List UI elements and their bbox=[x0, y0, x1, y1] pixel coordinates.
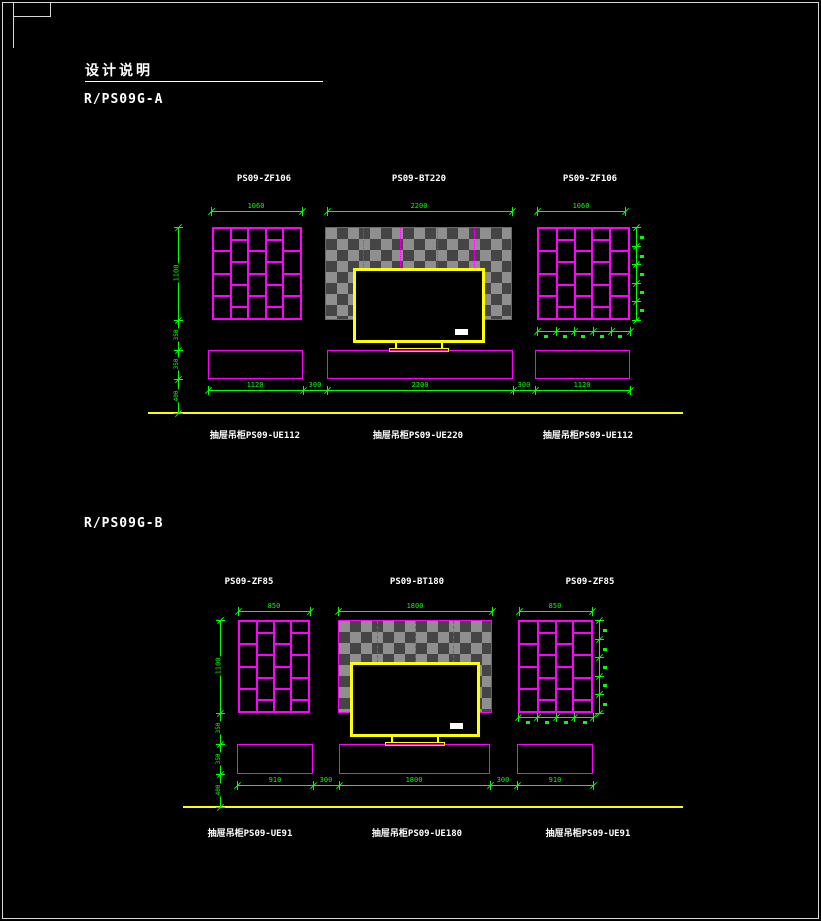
viewport-corner-tab bbox=[13, 3, 51, 17]
lattice-line bbox=[274, 643, 291, 645]
lattice-line bbox=[214, 273, 231, 275]
lattice-line bbox=[592, 284, 610, 286]
lattice-line bbox=[248, 273, 265, 275]
cabinet-right-b bbox=[517, 744, 593, 774]
lattice-line bbox=[556, 688, 574, 690]
lattice-line bbox=[573, 654, 591, 656]
viewport-corner-line bbox=[13, 3, 14, 48]
panel-label-left-a: PS09-ZF106 bbox=[237, 174, 291, 184]
lattice-line bbox=[231, 306, 248, 308]
drawing-b-name: R/PS09G-B bbox=[84, 516, 163, 531]
lattice-line bbox=[539, 250, 557, 252]
cabinet-right-a bbox=[535, 350, 630, 379]
lattice-line bbox=[257, 632, 274, 634]
lattice-panel-right-a bbox=[537, 227, 630, 320]
cabinet-label-left-a: 抽屉吊柜PS09-UE112 bbox=[210, 428, 300, 441]
lattice-line bbox=[520, 666, 538, 668]
tv-logo-b bbox=[450, 723, 463, 729]
lattice-line bbox=[257, 654, 274, 656]
lattice-line bbox=[266, 261, 283, 263]
lattice-line bbox=[283, 295, 300, 297]
lattice-line bbox=[539, 273, 557, 275]
lattice-line bbox=[557, 306, 575, 308]
lattice-line bbox=[592, 261, 610, 263]
lattice-line bbox=[291, 632, 308, 634]
lattice-line bbox=[231, 284, 248, 286]
cabinet-label-center-b: 抽屉吊柜PS09-UE180 bbox=[372, 826, 462, 839]
lattice-line bbox=[520, 688, 538, 690]
lattice-line bbox=[283, 250, 300, 252]
lattice-panel-left-b bbox=[238, 620, 310, 713]
lattice-line bbox=[266, 306, 283, 308]
cabinet-left-a bbox=[208, 350, 303, 379]
lattice-line bbox=[538, 654, 556, 656]
lattice-line bbox=[274, 688, 291, 690]
lattice-line bbox=[214, 295, 231, 297]
floor-line-b bbox=[183, 806, 683, 808]
cabinet-left-b bbox=[237, 744, 313, 774]
lattice-panel-left-a bbox=[212, 227, 302, 320]
lattice-line bbox=[274, 666, 291, 668]
lattice-line bbox=[248, 250, 265, 252]
lattice-line bbox=[573, 632, 591, 634]
lattice-line bbox=[231, 239, 248, 241]
floor-line-a bbox=[148, 412, 683, 414]
lattice-line bbox=[240, 688, 257, 690]
tv-b bbox=[350, 662, 480, 737]
lattice-line bbox=[575, 295, 593, 297]
lattice-panel-right-b bbox=[518, 620, 593, 713]
tv-stand-base-a bbox=[389, 348, 449, 352]
lattice-line bbox=[231, 261, 248, 263]
lattice-line bbox=[291, 654, 308, 656]
lattice-line bbox=[266, 239, 283, 241]
lattice-line bbox=[291, 677, 308, 679]
tv-a bbox=[353, 268, 485, 343]
cabinet-center-a bbox=[327, 350, 513, 379]
lattice-line bbox=[283, 273, 300, 275]
lattice-line bbox=[538, 699, 556, 701]
cabinet-center-b bbox=[339, 744, 490, 774]
cabinet-label-center-a: 抽屉吊柜PS09-UE220 bbox=[373, 428, 463, 441]
lattice-line bbox=[266, 284, 283, 286]
lattice-line bbox=[592, 306, 610, 308]
tv-logo-a bbox=[455, 329, 468, 335]
lattice-line bbox=[257, 699, 274, 701]
tv-stand-base-b bbox=[385, 742, 445, 746]
panel-label-center-b: PS09-BT180 bbox=[390, 577, 444, 587]
lattice-line bbox=[575, 250, 593, 252]
lattice-line bbox=[557, 261, 575, 263]
lattice-line bbox=[557, 239, 575, 241]
lattice-line bbox=[538, 677, 556, 679]
panel-label-center-a: PS09-BT220 bbox=[392, 174, 446, 184]
lattice-line bbox=[240, 643, 257, 645]
lattice-line bbox=[538, 632, 556, 634]
page-title: 设计说明 bbox=[85, 60, 153, 80]
lattice-line bbox=[240, 666, 257, 668]
viewport-border bbox=[2, 2, 819, 919]
lattice-line bbox=[610, 273, 628, 275]
cabinet-label-left-b: 抽屉吊柜PS09-UE91 bbox=[208, 826, 293, 839]
lattice-line bbox=[573, 699, 591, 701]
lattice-line bbox=[556, 666, 574, 668]
lattice-line bbox=[248, 295, 265, 297]
panel-label-right-b: PS09-ZF85 bbox=[566, 577, 615, 587]
lattice-line bbox=[575, 273, 593, 275]
cabinet-label-right-a: 抽屉吊柜PS09-UE112 bbox=[543, 428, 633, 441]
panel-label-left-b: PS09-ZF85 bbox=[225, 577, 274, 587]
lattice-line bbox=[610, 295, 628, 297]
lattice-line bbox=[592, 239, 610, 241]
lattice-line bbox=[557, 284, 575, 286]
lattice-line bbox=[610, 250, 628, 252]
cabinet-label-right-b: 抽屉吊柜PS09-UE91 bbox=[546, 826, 631, 839]
lattice-line bbox=[573, 677, 591, 679]
panel-label-right-a: PS09-ZF106 bbox=[563, 174, 617, 184]
lattice-line bbox=[539, 295, 557, 297]
lattice-line bbox=[291, 699, 308, 701]
lattice-line bbox=[214, 250, 231, 252]
lattice-line bbox=[257, 677, 274, 679]
lattice-line bbox=[520, 643, 538, 645]
drawing-a-name: R/PS09G-A bbox=[84, 92, 163, 107]
lattice-line bbox=[556, 643, 574, 645]
cad-canvas[interactable]: 设计说明 R/PS09G-A PS09-ZF106 PS09-BT220 PS0… bbox=[0, 0, 821, 921]
title-underline bbox=[85, 81, 323, 82]
